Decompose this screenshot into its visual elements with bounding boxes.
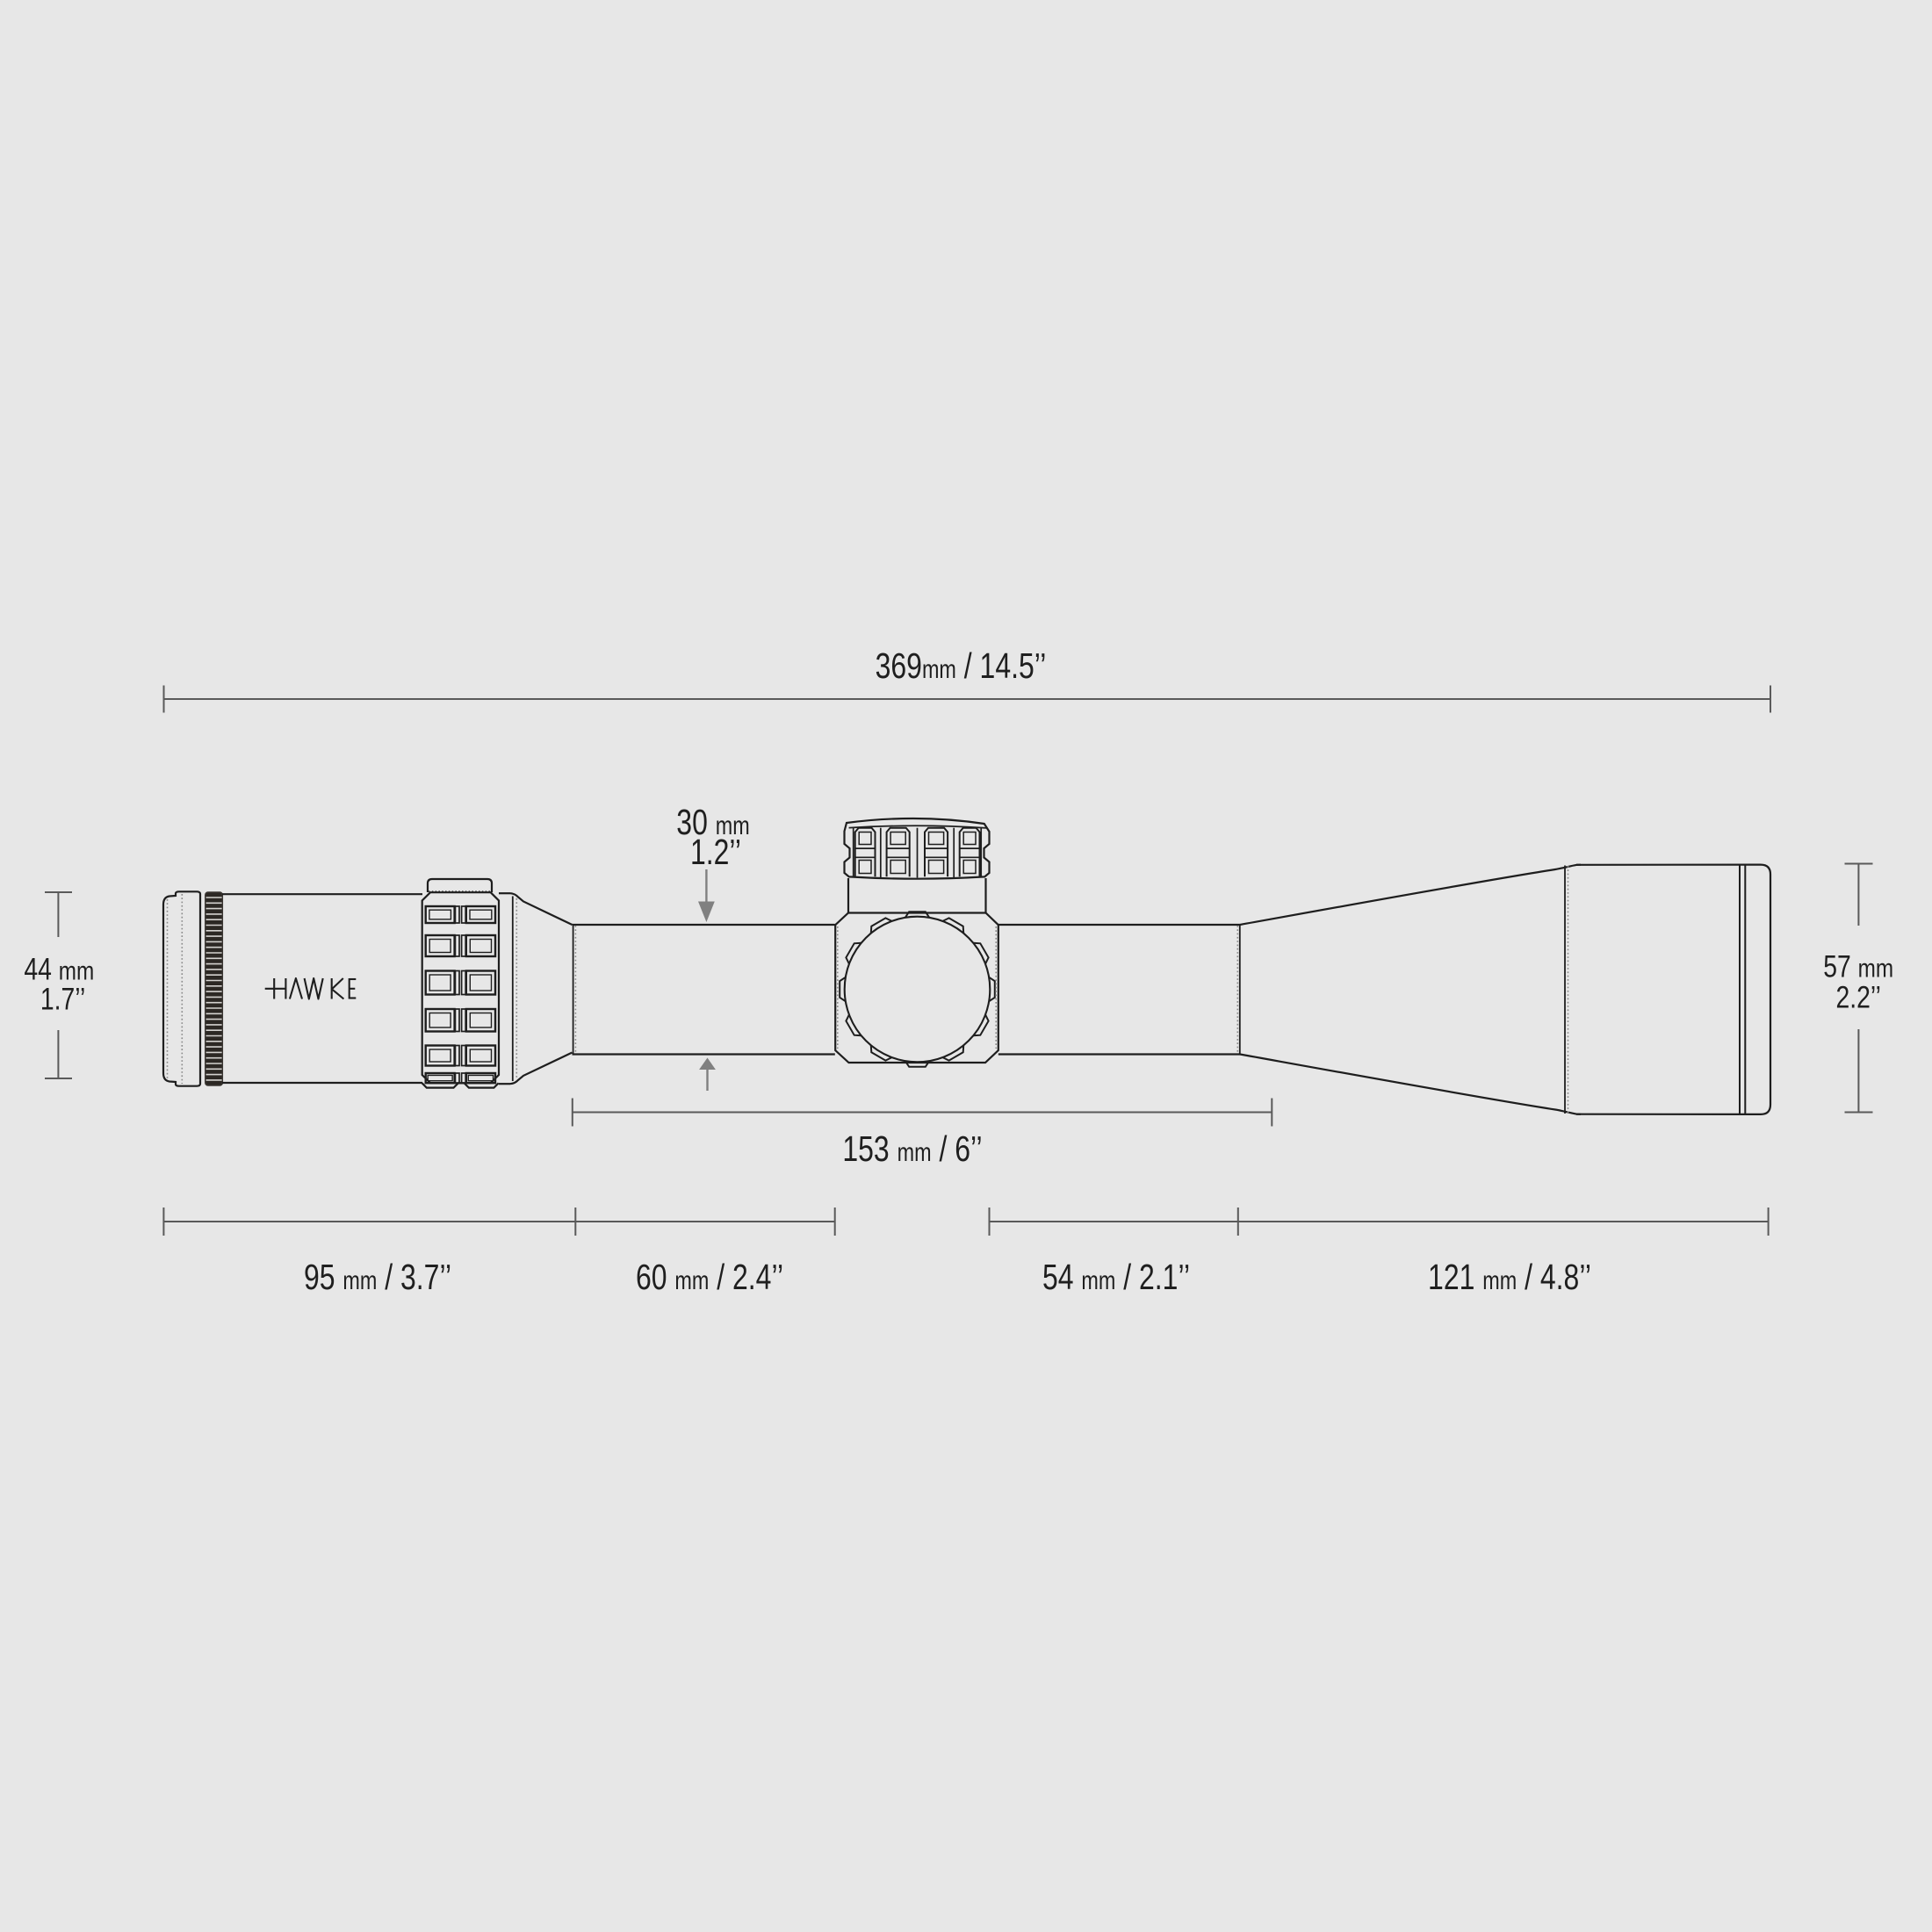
svg-text:54 mm / 2.1’’: 54 mm / 2.1’’: [1042, 1257, 1190, 1297]
svg-text:1.2’’: 1.2’’: [690, 832, 741, 872]
svg-text:2.2’’: 2.2’’: [1835, 980, 1880, 1015]
svg-text:95 mm / 3.7’’: 95 mm / 3.7’’: [304, 1257, 451, 1297]
svg-text:60 mm / 2.4’’: 60 mm / 2.4’’: [636, 1257, 783, 1297]
svg-text:57 mm: 57 mm: [1823, 949, 1893, 984]
svg-text:369mm / 14.5’’: 369mm / 14.5’’: [876, 645, 1047, 686]
svg-text:1.7’’: 1.7’’: [40, 982, 85, 1017]
